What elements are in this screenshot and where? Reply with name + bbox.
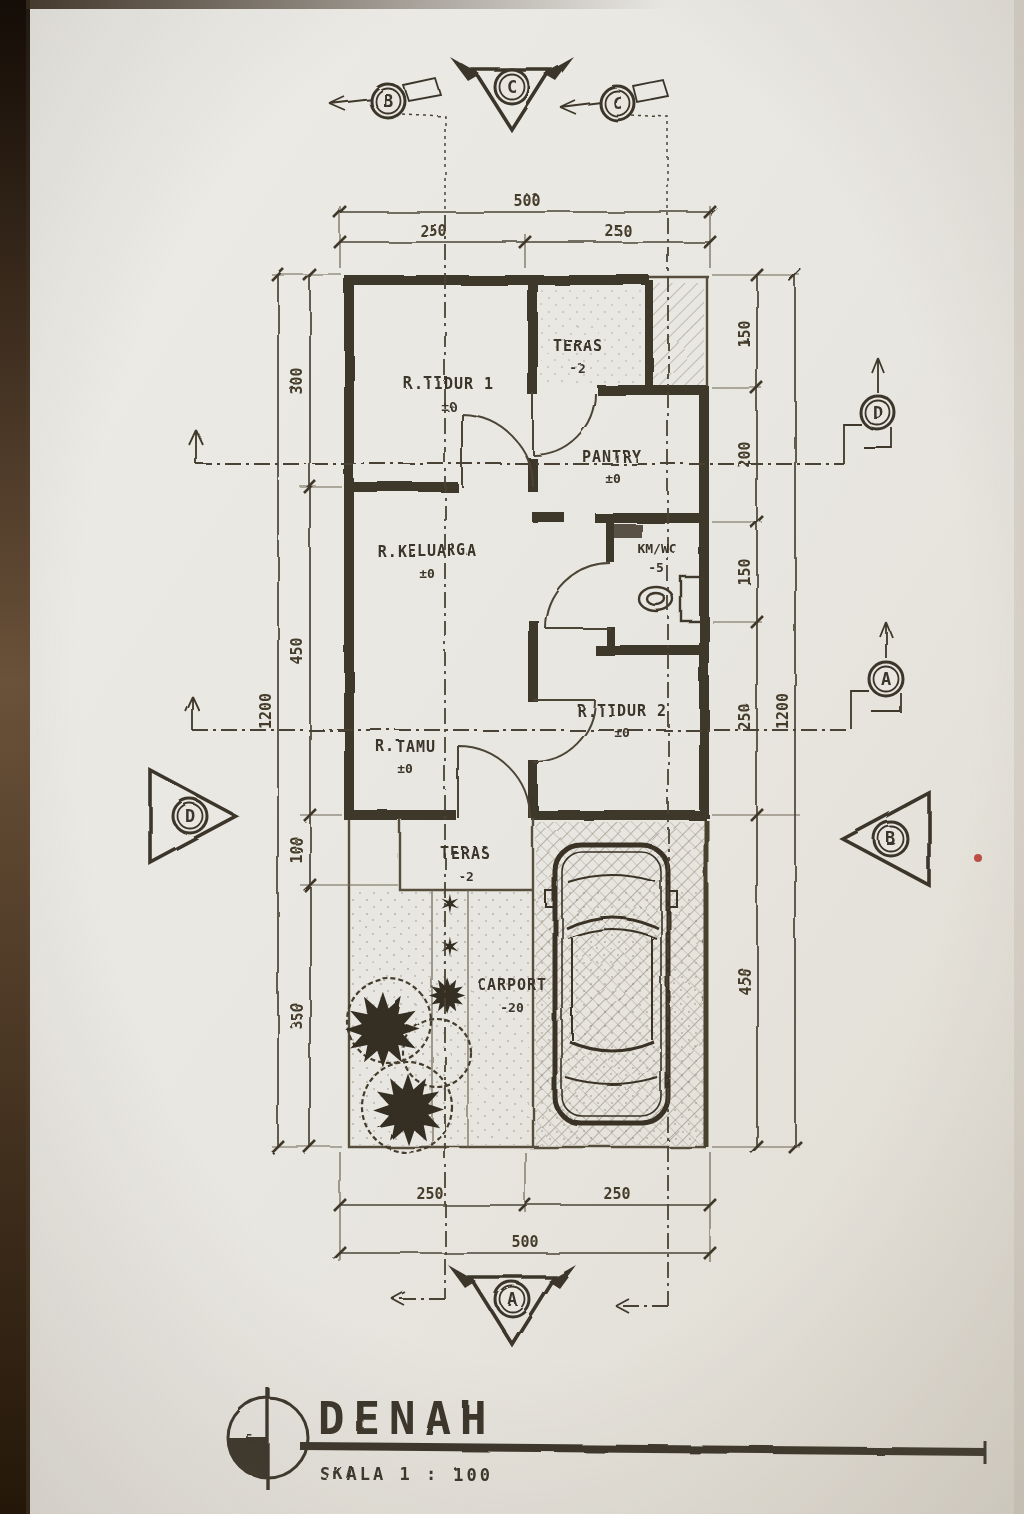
floor-plan-drawing: ✹ ✹ ✹ ✶ ✶ — [0, 0, 1024, 1514]
photo-dark-edge — [0, 0, 30, 1514]
photo-vignette — [26, 0, 1024, 1514]
scanned-floor-plan-photo: ✹ ✹ ✹ ✶ ✶ — [0, 0, 1024, 1514]
